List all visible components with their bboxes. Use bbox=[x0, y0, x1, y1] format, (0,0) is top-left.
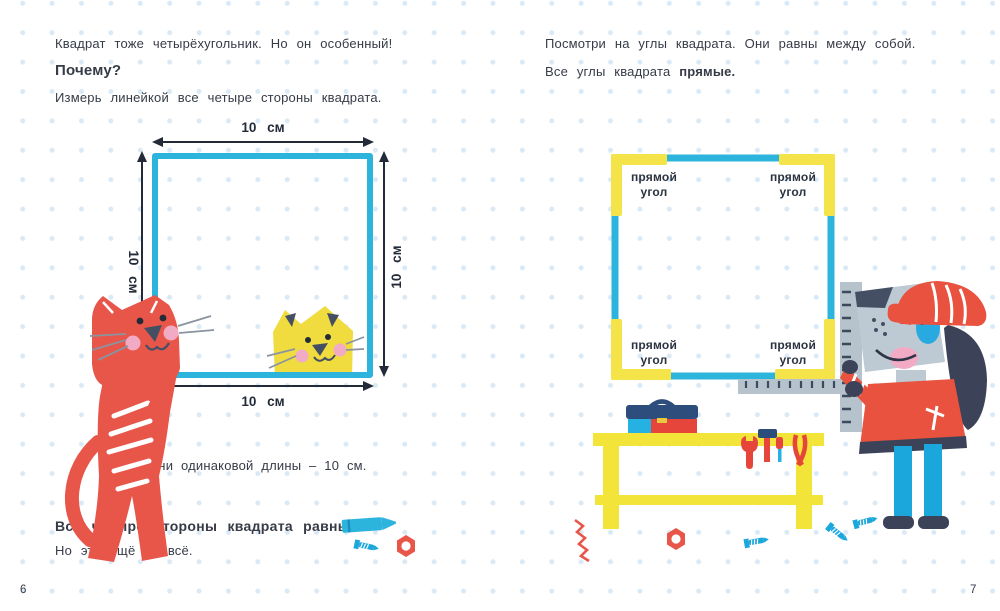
nut-icon bbox=[395, 534, 417, 558]
intro-text-left: Квадрат тоже четырёхугольник. Но он особ… bbox=[55, 36, 392, 51]
dimension-arrow-top bbox=[152, 136, 374, 148]
statement-prefix: Все углы квадрата bbox=[545, 64, 670, 79]
squiggle-icon bbox=[572, 516, 614, 562]
corner-label-bottom-left: прямой угол bbox=[621, 338, 687, 368]
book-spread: Квадрат тоже четырёхугольник. Но он особ… bbox=[0, 0, 1000, 611]
corner-label-bottom-right: прямой угол bbox=[760, 338, 826, 368]
corner-label-top-left: прямой угол bbox=[621, 170, 687, 200]
screw-icon bbox=[353, 537, 381, 555]
dimension-label-top: 10 см bbox=[152, 120, 374, 135]
dimension-arrow-right bbox=[378, 151, 390, 377]
page-number-left: 6 bbox=[20, 584, 26, 596]
workbench-illustration bbox=[590, 395, 835, 540]
question-heading: Почему? bbox=[55, 62, 121, 79]
dog-illustration bbox=[838, 268, 998, 562]
corner-label-top-right: прямой угол bbox=[760, 170, 826, 200]
statement-text: Все углы квадрата прямые. bbox=[545, 64, 735, 79]
instruction-text: Измерь линейкой все четыре стороны квадр… bbox=[55, 90, 382, 105]
screwdriver-icon bbox=[776, 437, 783, 462]
page-left: Квадрат тоже четырёхугольник. Но он особ… bbox=[0, 0, 500, 611]
intro-text-right: Посмотри на углы квадрата. Они равны меж… bbox=[545, 36, 916, 51]
dimension-label-right: 10 см bbox=[389, 232, 409, 302]
red-cat-illustration bbox=[58, 290, 233, 568]
page-right: Посмотри на углы квадрата. Они равны меж… bbox=[500, 0, 1000, 611]
statement-bold: прямые. bbox=[679, 64, 735, 79]
toolbox-icon bbox=[626, 402, 698, 434]
crayon-icon bbox=[339, 510, 399, 540]
nut-icon bbox=[665, 527, 687, 551]
page-number-right: 7 bbox=[970, 584, 976, 596]
